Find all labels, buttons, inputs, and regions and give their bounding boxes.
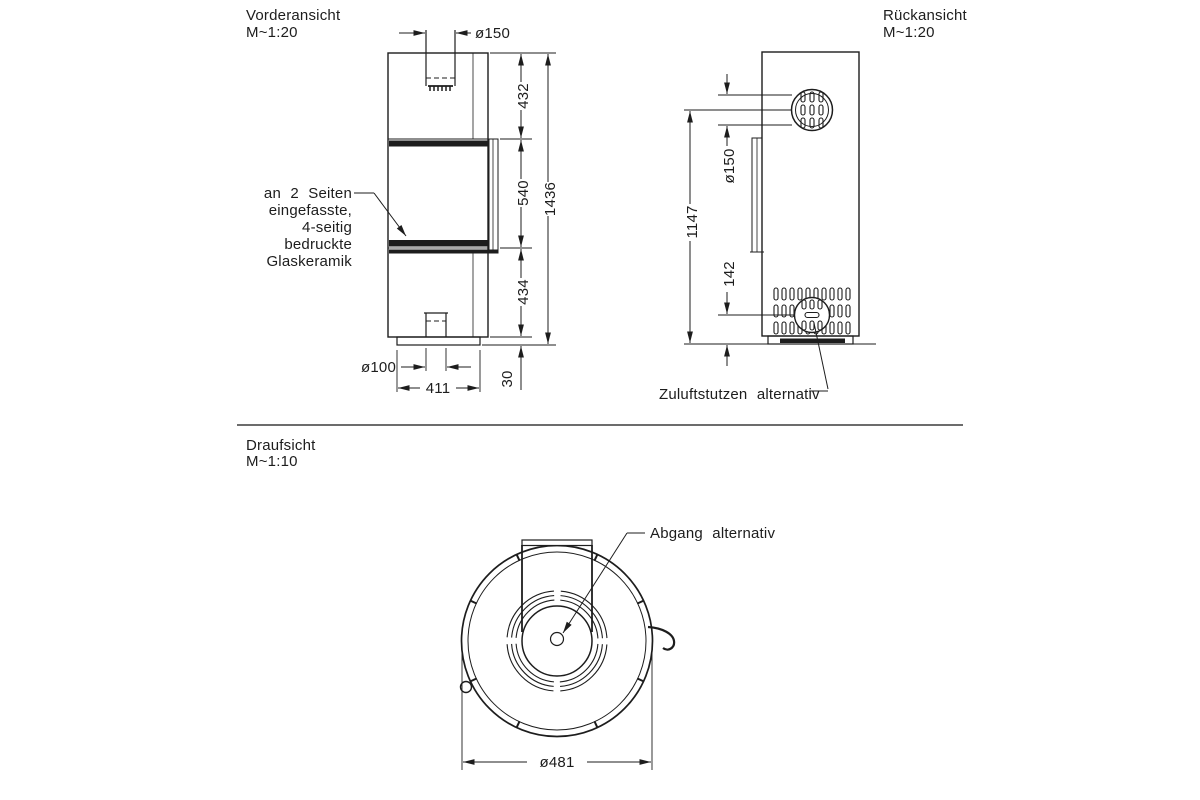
- front-dim-total-height: 1436: [542, 54, 559, 344]
- top-firebox-circle: [522, 606, 592, 676]
- top-outlet-circle: [551, 633, 564, 646]
- front-dim-chain: 432 540 434 30: [499, 54, 532, 390]
- top-dim-diameter-text: ø481: [540, 754, 575, 771]
- front-dim-flue-diameter-text: ø150: [475, 25, 510, 42]
- front-dim-total-text: 1436: [542, 182, 559, 216]
- glass-note-line-1: an 2 Seiten: [264, 185, 352, 202]
- rear-view-scale: M~1:20: [883, 24, 935, 41]
- front-dim-air-inlet: ø100: [361, 348, 471, 376]
- front-dim-base-width: 411: [397, 350, 480, 397]
- front-dim-base-width-text: 411: [426, 380, 451, 397]
- top-outlet-label: Abgang alternativ: [563, 525, 775, 633]
- front-view-title: Vorderansicht: [246, 7, 341, 24]
- glass-note-line-5: Glaskeramik: [266, 253, 352, 270]
- glass-note-line-4: bedruckte: [284, 236, 352, 253]
- rear-side-glass-strip: [750, 138, 764, 252]
- rear-air-inlet-label: Zuluftstutzen alternativ: [659, 323, 828, 403]
- rear-dim-flue-diameter: ø150: [721, 74, 738, 184]
- top-outer-circle: [462, 546, 653, 737]
- rear-dim-flue-text: ø150: [721, 149, 738, 184]
- rear-air-inlet-label-text: Zuluftstutzen alternativ: [659, 386, 820, 403]
- rear-extension-lines: [684, 95, 792, 125]
- front-dim-upper-text: 432: [515, 83, 532, 109]
- top-view-scale: M~1:10: [246, 453, 298, 470]
- top-door-front: [522, 540, 592, 632]
- front-air-inlet-pipe: [424, 313, 448, 337]
- rear-view: Rückansicht M~1:20: [659, 7, 968, 403]
- front-dim-plinth-text: 30: [499, 370, 516, 387]
- drawing-canvas: Vorderansicht M~1:20: [0, 0, 1200, 800]
- rear-vent-grille: [774, 288, 850, 334]
- front-glass-section: [388, 139, 498, 254]
- rear-base: [684, 336, 876, 344]
- top-shell-ticks: [470, 554, 643, 727]
- glass-note-line-3: 4-seitig: [302, 219, 352, 236]
- rear-air-inlet-connector: [795, 298, 830, 333]
- front-flue-pipe: [426, 30, 455, 91]
- top-view: Draufsicht M~1:10: [246, 437, 775, 771]
- rear-dim-flue-height: 1147: [684, 111, 701, 343]
- front-dim-inlet-text: ø100: [361, 359, 396, 376]
- front-view-scale: M~1:20: [246, 24, 298, 41]
- rear-view-title: Rückansicht: [883, 7, 968, 24]
- top-outlet-label-text: Abgang alternativ: [650, 525, 775, 542]
- front-dim-lower-text: 434: [515, 279, 532, 305]
- top-view-title: Draufsicht: [246, 437, 316, 454]
- rear-dim-inlet-height-text: 142: [721, 261, 738, 287]
- front-base-plinth: [397, 337, 480, 345]
- glass-note-line-2: eingefasste,: [269, 202, 352, 219]
- top-inner-shell-circle: [468, 552, 646, 730]
- front-glass-note: an 2 Seiten eingefasste, 4-seitig bedruc…: [264, 185, 406, 270]
- front-view: Vorderansicht M~1:20: [246, 7, 559, 397]
- rear-flue-collar: [792, 90, 833, 131]
- front-dim-glass-text: 540: [515, 180, 532, 206]
- rear-dim-inlet-height: 142: [718, 261, 795, 366]
- rear-dim-flue-height-text: 1147: [684, 205, 701, 238]
- technical-drawing-stove: Vorderansicht M~1:20: [0, 0, 1200, 800]
